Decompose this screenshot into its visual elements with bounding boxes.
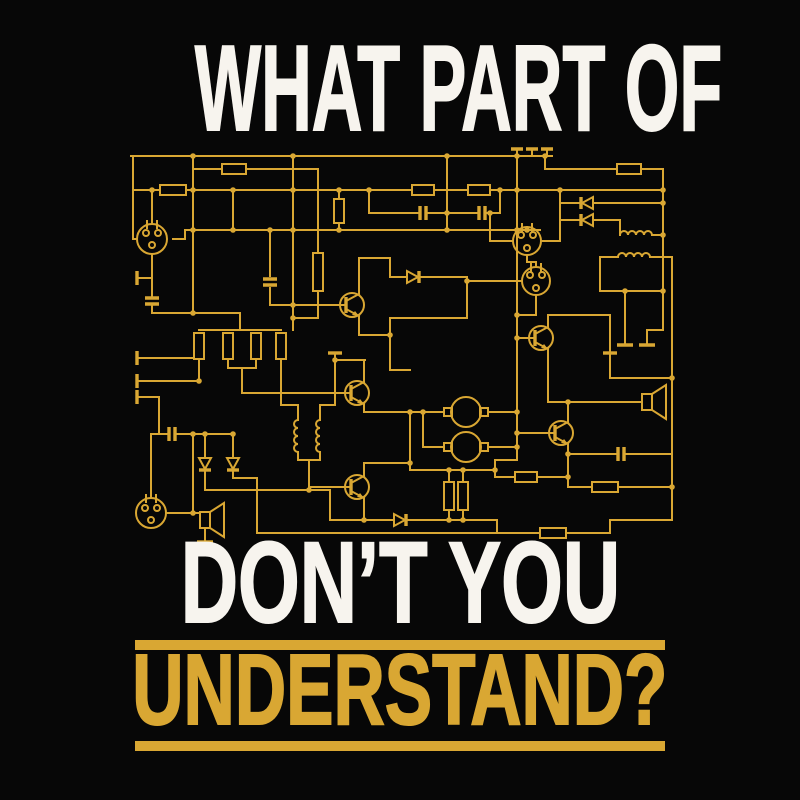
headline-middle-text: DON’T YOU <box>180 526 619 641</box>
poster: WHAT PART OF <box>0 0 800 800</box>
headline-bottom-text: UNDERSTAND? <box>132 640 667 740</box>
headline-middle: DON’T YOU <box>0 526 800 641</box>
ground-contacts <box>137 149 655 542</box>
motor-circle <box>444 397 488 427</box>
underline-bar-bottom <box>135 741 665 751</box>
vacuum-tube <box>522 264 550 295</box>
headline-bottom: UNDERSTAND? <box>0 640 800 740</box>
motor-circle <box>444 432 488 462</box>
diodes <box>199 197 593 526</box>
vacuum-tube <box>136 495 166 528</box>
inductor-coils <box>294 231 652 452</box>
junction-dots <box>149 153 675 523</box>
vacuum-tube <box>137 221 167 254</box>
speaker <box>642 385 666 419</box>
